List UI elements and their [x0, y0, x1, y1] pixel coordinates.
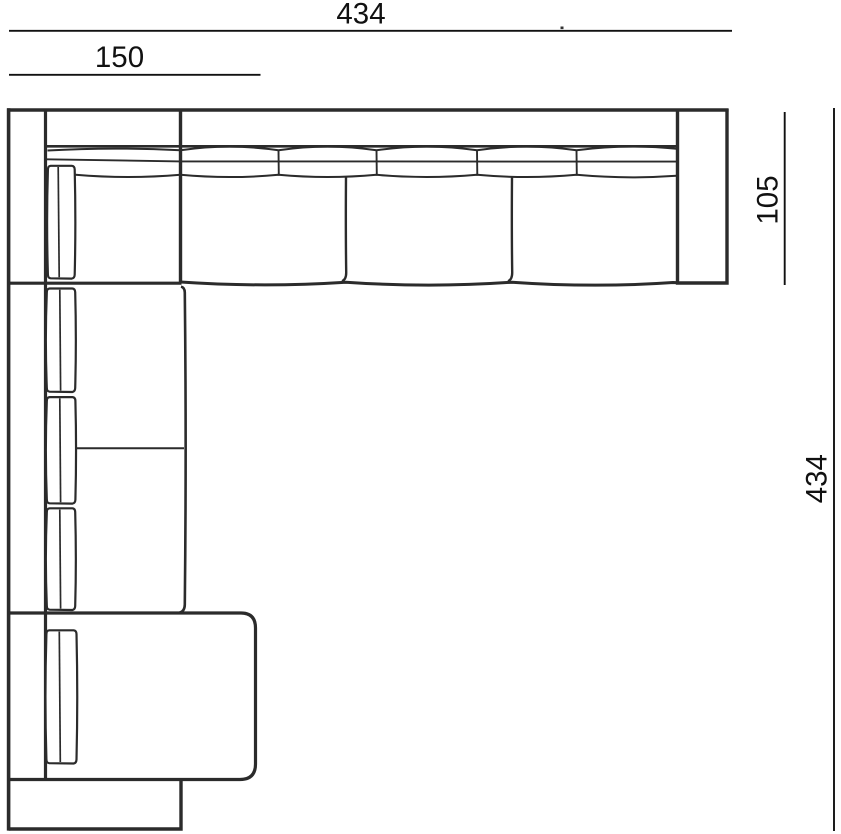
svg-text:434: 434 [801, 454, 834, 503]
svg-text:434: 434 [336, 0, 385, 31]
svg-text:150: 150 [95, 41, 144, 74]
svg-text:105: 105 [752, 175, 785, 224]
